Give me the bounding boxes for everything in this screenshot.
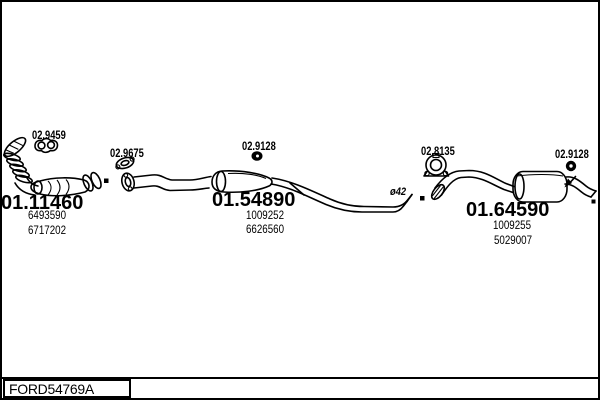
drawing-code: FORD54769A	[9, 381, 94, 397]
mid-pipe	[134, 175, 211, 191]
joint-dot-mid	[420, 196, 425, 201]
oe-ref: 6717202	[28, 226, 66, 238]
label-flange-gasket[interactable]: 02.9675	[110, 147, 144, 159]
drawing-code-box: FORD54769A	[3, 379, 131, 398]
oe-ref: 6493590	[28, 211, 66, 223]
oe-ref: 5029007	[494, 236, 532, 248]
front-flange	[120, 172, 136, 192]
label-rear-hanger[interactable]: 02.9128	[555, 148, 589, 160]
tailpipe	[565, 177, 596, 197]
joint-dot-rear	[592, 200, 596, 204]
catalyst-outlet-flange	[81, 171, 103, 192]
pipe-diameter-annotation: ø42	[390, 187, 406, 198]
rear-muffler-body	[513, 172, 567, 203]
oe-ref: 6626560	[246, 225, 284, 237]
oe-ref: 1009255	[493, 221, 531, 233]
oe-ref: 1009252	[246, 211, 284, 223]
rear-hanger-icon	[566, 161, 576, 171]
front-downpipe-flange-icon	[2, 134, 29, 159]
label-front-gasket[interactable]: 02.9459	[32, 129, 66, 141]
part-number-center[interactable]: 01.54890	[212, 190, 295, 210]
joint-dot-front	[104, 179, 109, 184]
label-pipe-clamp[interactable]: 02.8135	[421, 145, 455, 157]
label-center-hanger[interactable]: 02.9128	[242, 140, 276, 152]
part-number-rear[interactable]: 01.64590	[466, 200, 549, 220]
exhaust-parts-diagram: 02.9459 02.9675 02.9128 02.8135 02.9128 …	[0, 0, 600, 400]
